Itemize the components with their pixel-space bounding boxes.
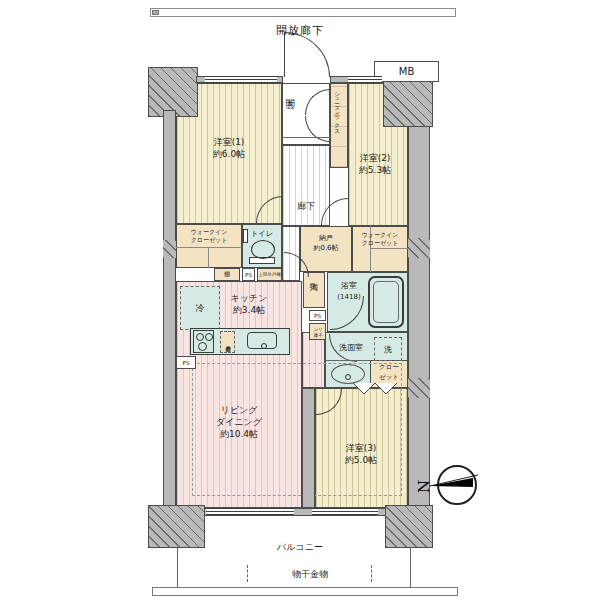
wic-left-shelf-line xyxy=(176,247,242,248)
wall-right-joint-1 xyxy=(408,238,430,258)
living-balcony-window xyxy=(206,508,294,515)
hallway-label: 廊下 xyxy=(288,200,324,212)
open-corridor-label: 開放廊下 xyxy=(245,24,355,39)
floor-plan: 開放廊下 MB xyxy=(0,0,600,600)
stove-burner-2 xyxy=(205,333,213,341)
laundry-bracket-left xyxy=(247,565,250,582)
wic-left-line2: クローゼット xyxy=(178,236,240,244)
stove xyxy=(193,330,214,353)
shelf-label: 棚 xyxy=(224,270,230,279)
toilet-bowl xyxy=(251,240,275,259)
railing-post xyxy=(152,10,159,15)
closet-line2: ゼット xyxy=(371,372,407,382)
stove-burner-1 xyxy=(196,333,204,341)
bedroom3-size: 約5.0帖 xyxy=(316,454,406,466)
bedroom2-name: 洋室(2) xyxy=(330,152,420,164)
bath-label: 浴室 (1418) xyxy=(329,280,369,303)
bedroom3-balcony-window xyxy=(312,508,378,515)
bedroom1-size: 約6.0帖 xyxy=(179,148,279,160)
balcony-rail-left xyxy=(177,548,178,587)
stove-burner-3 xyxy=(198,342,207,351)
wic-right-line1: ウォークイン xyxy=(353,231,407,239)
wic-left-label: ウォークイン クローゼット xyxy=(178,228,240,244)
balcony-label: バルコニー xyxy=(250,541,350,553)
shelf-box: 棚 xyxy=(214,268,240,281)
living-size: 約10.4帖 xyxy=(183,428,295,440)
bedroom3-name: 洋室(3) xyxy=(316,442,406,454)
living-line2: ダイニング xyxy=(183,416,295,428)
nando-label: 納戸 約0.6帖 xyxy=(301,234,351,254)
compass-needle xyxy=(430,478,473,487)
ps-top-label: PS xyxy=(245,272,252,278)
washroom-label: 洗面室 xyxy=(328,343,374,354)
upper-cabinet-label: 上部吊戸棚 xyxy=(258,272,281,277)
nando-size: 約0.6帖 xyxy=(301,244,351,254)
wall-corner-top-right xyxy=(383,76,433,127)
laundry-label: 物干金物 xyxy=(260,568,360,580)
wic-left-divider xyxy=(208,247,209,268)
closet-folding-door xyxy=(352,383,398,395)
wic-right-label: ウォークイン クローゼット xyxy=(353,231,407,247)
bedroom2-window xyxy=(348,76,382,83)
ps-mid-label: PS xyxy=(314,313,321,319)
bedroom3-label: 洋室(3) 約5.0帖 xyxy=(316,442,406,466)
wic-left-line1: ウォークイン xyxy=(178,228,240,236)
balcony-rail-right xyxy=(410,548,411,587)
entrance-step-line xyxy=(282,137,330,138)
wall-left xyxy=(163,110,176,508)
ps-bottom-label: PS xyxy=(183,360,190,366)
counter-upper-cabinet: 上部吊戸棚 xyxy=(220,331,235,353)
monoire-cabinet xyxy=(303,272,325,308)
bedroom1-name: 洋室(1) xyxy=(179,136,279,148)
nando-name: 納戸 xyxy=(301,234,351,244)
bedroom1-window xyxy=(205,76,277,83)
toilet-label: トイレ xyxy=(244,229,280,239)
linen-label: リネン庫 xyxy=(313,324,322,339)
kitchen-name: キッチン xyxy=(196,292,302,304)
compass: N xyxy=(414,450,490,520)
bedroom2-label: 洋室(2) 約5.3帖 xyxy=(330,152,420,176)
living-label: リビング ダイニング 約10.4帖 xyxy=(183,404,295,440)
wall-left-joint xyxy=(163,240,176,258)
bath-name: 浴室 xyxy=(329,280,369,292)
wall-living-bedroom3 xyxy=(302,388,315,508)
linen-box: リネン庫 xyxy=(309,323,326,340)
closet-line1: クロー xyxy=(371,362,407,372)
compass-north-label: N xyxy=(415,480,433,493)
laundry-bracket-right xyxy=(371,565,374,582)
washer-label: 洗 xyxy=(384,344,392,355)
ps-mid-box: PS xyxy=(309,310,326,321)
wic-right-line2: クローゼット xyxy=(353,239,407,247)
ps-bottom-box: PS xyxy=(176,356,196,369)
upper-cabinet-box: 上部吊戸棚 xyxy=(257,268,282,281)
washer-box: 洗 xyxy=(374,337,402,361)
ps-top-box: PS xyxy=(242,268,255,281)
bathtub xyxy=(368,276,404,328)
mb-label: MB xyxy=(399,66,415,77)
bath-size: (1418) xyxy=(329,292,369,303)
sink-drain xyxy=(261,343,267,349)
closet-label: クロー ゼット xyxy=(371,362,407,383)
vanity-drain xyxy=(345,374,351,380)
living-line1: リビング xyxy=(183,404,295,416)
bedroom2-size: 約5.3帖 xyxy=(330,164,420,176)
kitchen-label: キッチン 約3.4帖 xyxy=(196,292,302,316)
balcony-outer-edge xyxy=(152,587,458,596)
corridor-railing xyxy=(150,8,456,17)
kitchen-sink xyxy=(247,332,277,349)
shoebox-label: シューズボックス xyxy=(334,88,340,132)
bedroom1-label: 洋室(1) 約6.0帖 xyxy=(179,136,279,160)
kitchen-size: 約3.4帖 xyxy=(196,304,302,316)
mb-box: MB xyxy=(374,61,439,82)
wic-right-shelf-line xyxy=(370,248,408,249)
wall-corner-bottom-left xyxy=(148,505,205,548)
wall-right-joint-2 xyxy=(408,378,430,398)
vanity-divider xyxy=(325,360,370,361)
bathtub-inner xyxy=(373,281,399,323)
